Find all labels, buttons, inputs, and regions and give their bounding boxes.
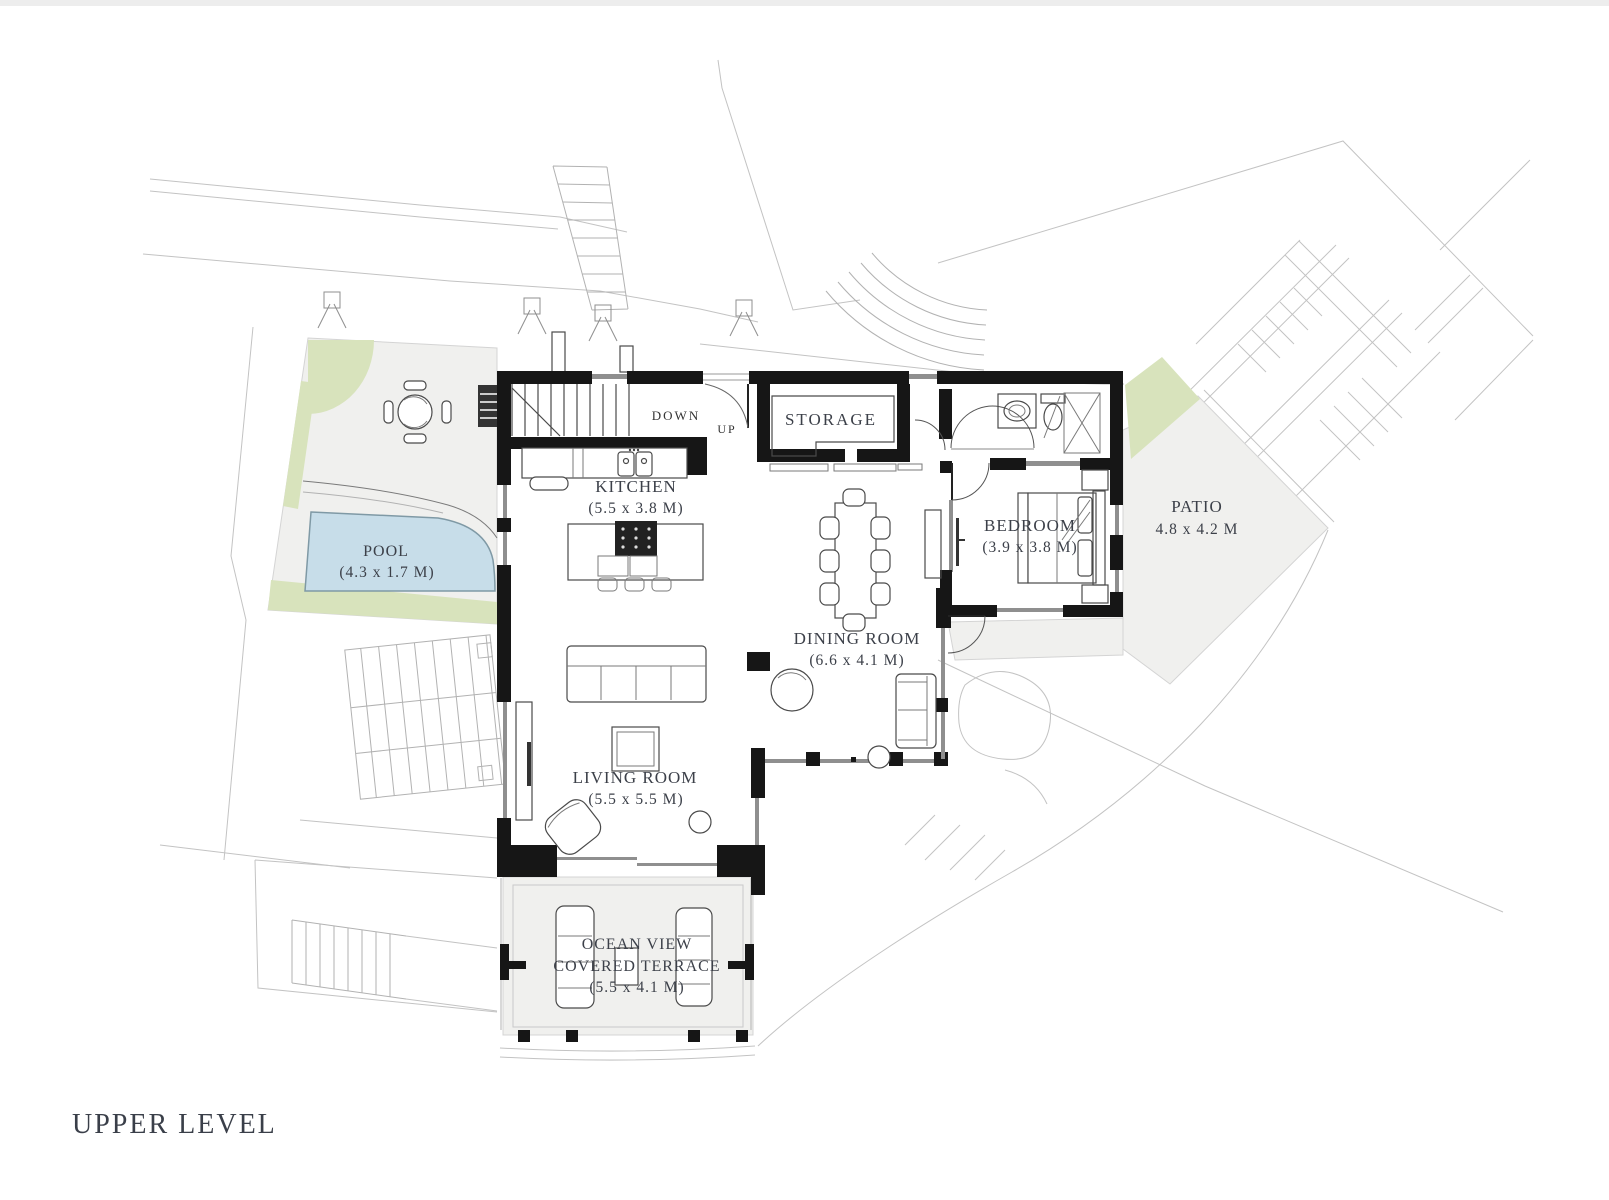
kitchen bbox=[522, 448, 703, 591]
label-terrace-line1: OCEAN VIEW bbox=[582, 936, 693, 953]
page-title: UPPER LEVEL bbox=[72, 1109, 277, 1140]
lounge-chair bbox=[556, 906, 594, 1008]
column bbox=[747, 652, 770, 671]
terrace-steps bbox=[500, 1046, 755, 1060]
living-room bbox=[516, 646, 711, 859]
floor-plan-page: DOWN UP KITCHEN (5.5 x 3.8 M) STORAGE DI… bbox=[0, 0, 1609, 1200]
label-kitchen-dims: (5.5 x 3.8 M) bbox=[588, 500, 683, 517]
entry-post bbox=[552, 332, 565, 372]
label-dining-name: DINING ROOM bbox=[794, 629, 921, 648]
terrace-column bbox=[736, 1030, 748, 1042]
site-curved-steps bbox=[826, 253, 987, 370]
dining-table bbox=[835, 503, 876, 618]
label-living-dims: (5.5 x 5.5 M) bbox=[588, 791, 683, 808]
label-stairs-down: DOWN bbox=[652, 408, 700, 423]
label-terrace-line2: COVERED TERRACE bbox=[553, 958, 720, 975]
site-building-outline bbox=[718, 60, 860, 310]
label-living-name: LIVING ROOM bbox=[573, 768, 698, 787]
pergola bbox=[345, 635, 506, 799]
kitchen-island bbox=[568, 521, 703, 591]
interior-stairs bbox=[512, 384, 629, 436]
site-ridge-line bbox=[938, 141, 1533, 336]
bathroom bbox=[998, 393, 1100, 453]
label-bedroom-dims: (3.9 x 3.8 M) bbox=[982, 539, 1077, 556]
label-patio-dims: 4.8 x 4.2 M bbox=[1156, 521, 1239, 538]
label-storage-name: STORAGE bbox=[785, 410, 877, 429]
label-pool-dims: (4.3 x 1.7 M) bbox=[339, 564, 434, 581]
terrace-column bbox=[518, 1030, 530, 1042]
accent-chair bbox=[771, 669, 813, 711]
coffee-table bbox=[612, 727, 659, 771]
kitchen-counter bbox=[522, 448, 687, 478]
bed bbox=[1018, 491, 1105, 585]
nightstand bbox=[1082, 585, 1108, 603]
patio-walkway bbox=[948, 618, 1123, 660]
terrace-column bbox=[566, 1030, 578, 1042]
label-dining-dims: (6.6 x 4.1 M) bbox=[809, 652, 904, 669]
shower bbox=[1044, 393, 1100, 453]
side-table bbox=[868, 746, 890, 768]
toilet bbox=[1041, 394, 1065, 430]
grill bbox=[478, 385, 500, 427]
tv-icon bbox=[956, 518, 959, 566]
tv-console bbox=[925, 510, 965, 578]
site-gates bbox=[318, 292, 758, 341]
page-top-strip bbox=[0, 0, 1609, 6]
label-terrace-dims: (5.5 x 4.1 M) bbox=[589, 979, 684, 996]
tv-icon bbox=[527, 742, 531, 786]
bathroom-sink bbox=[1004, 401, 1030, 421]
label-stairs-up: UP bbox=[717, 422, 736, 436]
sofa bbox=[567, 646, 706, 702]
label-patio-name: PATIO bbox=[1171, 497, 1223, 516]
nightstand bbox=[1082, 470, 1108, 490]
label-bedroom-name: BEDROOM bbox=[984, 516, 1076, 535]
floor-plan-canvas: DOWN UP KITCHEN (5.5 x 3.8 M) STORAGE DI… bbox=[0, 0, 1609, 1200]
loveseat bbox=[896, 674, 936, 748]
media-console bbox=[516, 702, 532, 820]
entry-post bbox=[620, 346, 633, 372]
label-pool-name: POOL bbox=[363, 543, 409, 560]
label-kitchen-name: KITCHEN bbox=[595, 477, 677, 496]
kitchen-appliance bbox=[530, 477, 568, 490]
terrace-column bbox=[688, 1030, 700, 1042]
site-slope-line bbox=[938, 660, 1503, 912]
side-table bbox=[689, 811, 711, 833]
site-lower-terrace bbox=[255, 820, 497, 1012]
